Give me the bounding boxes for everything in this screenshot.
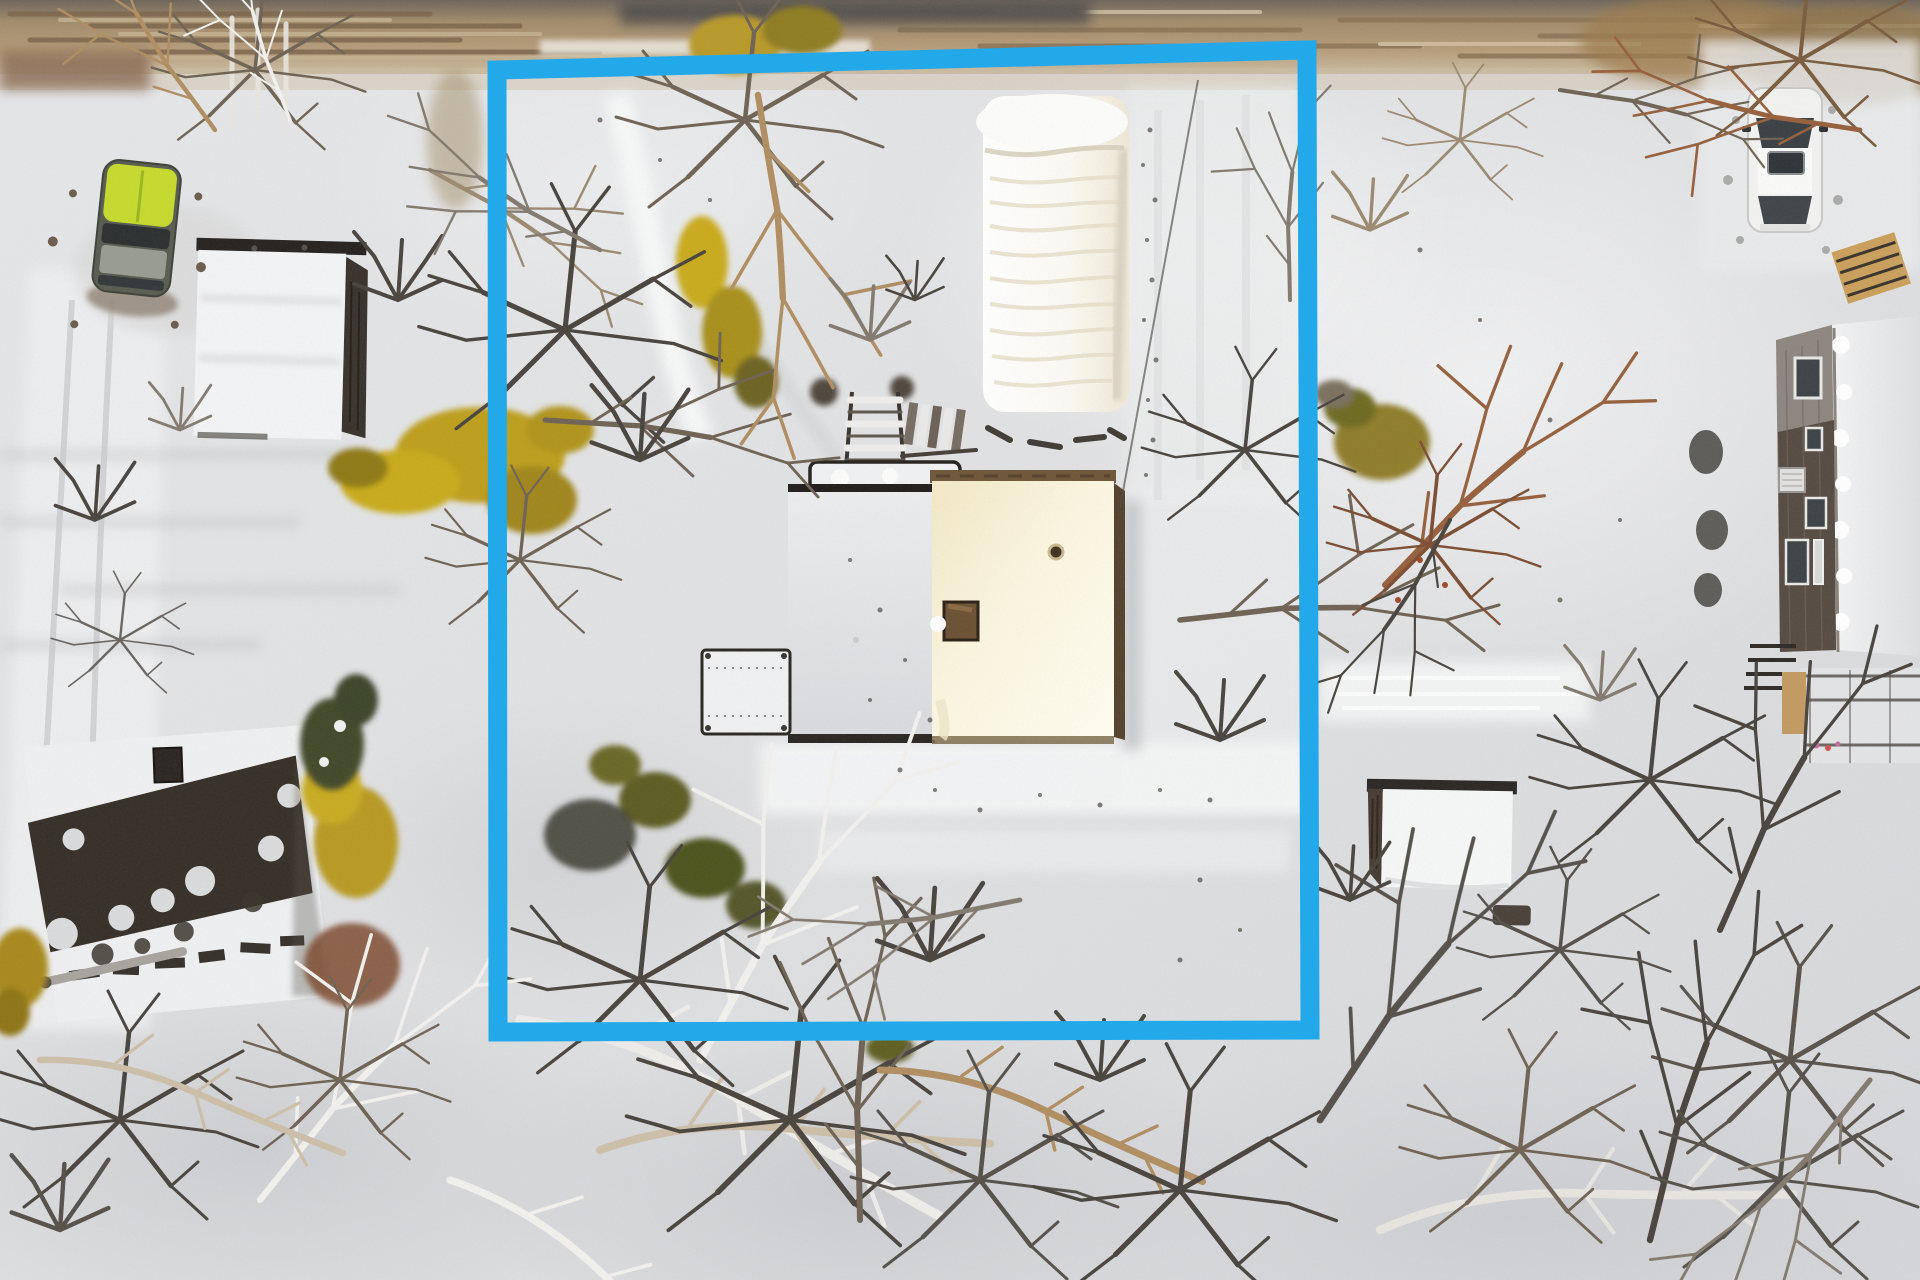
aerial-photo-canvas [0, 0, 1920, 1280]
aerial-photo [0, 0, 1920, 1280]
photo-grain [0, 0, 1920, 1280]
